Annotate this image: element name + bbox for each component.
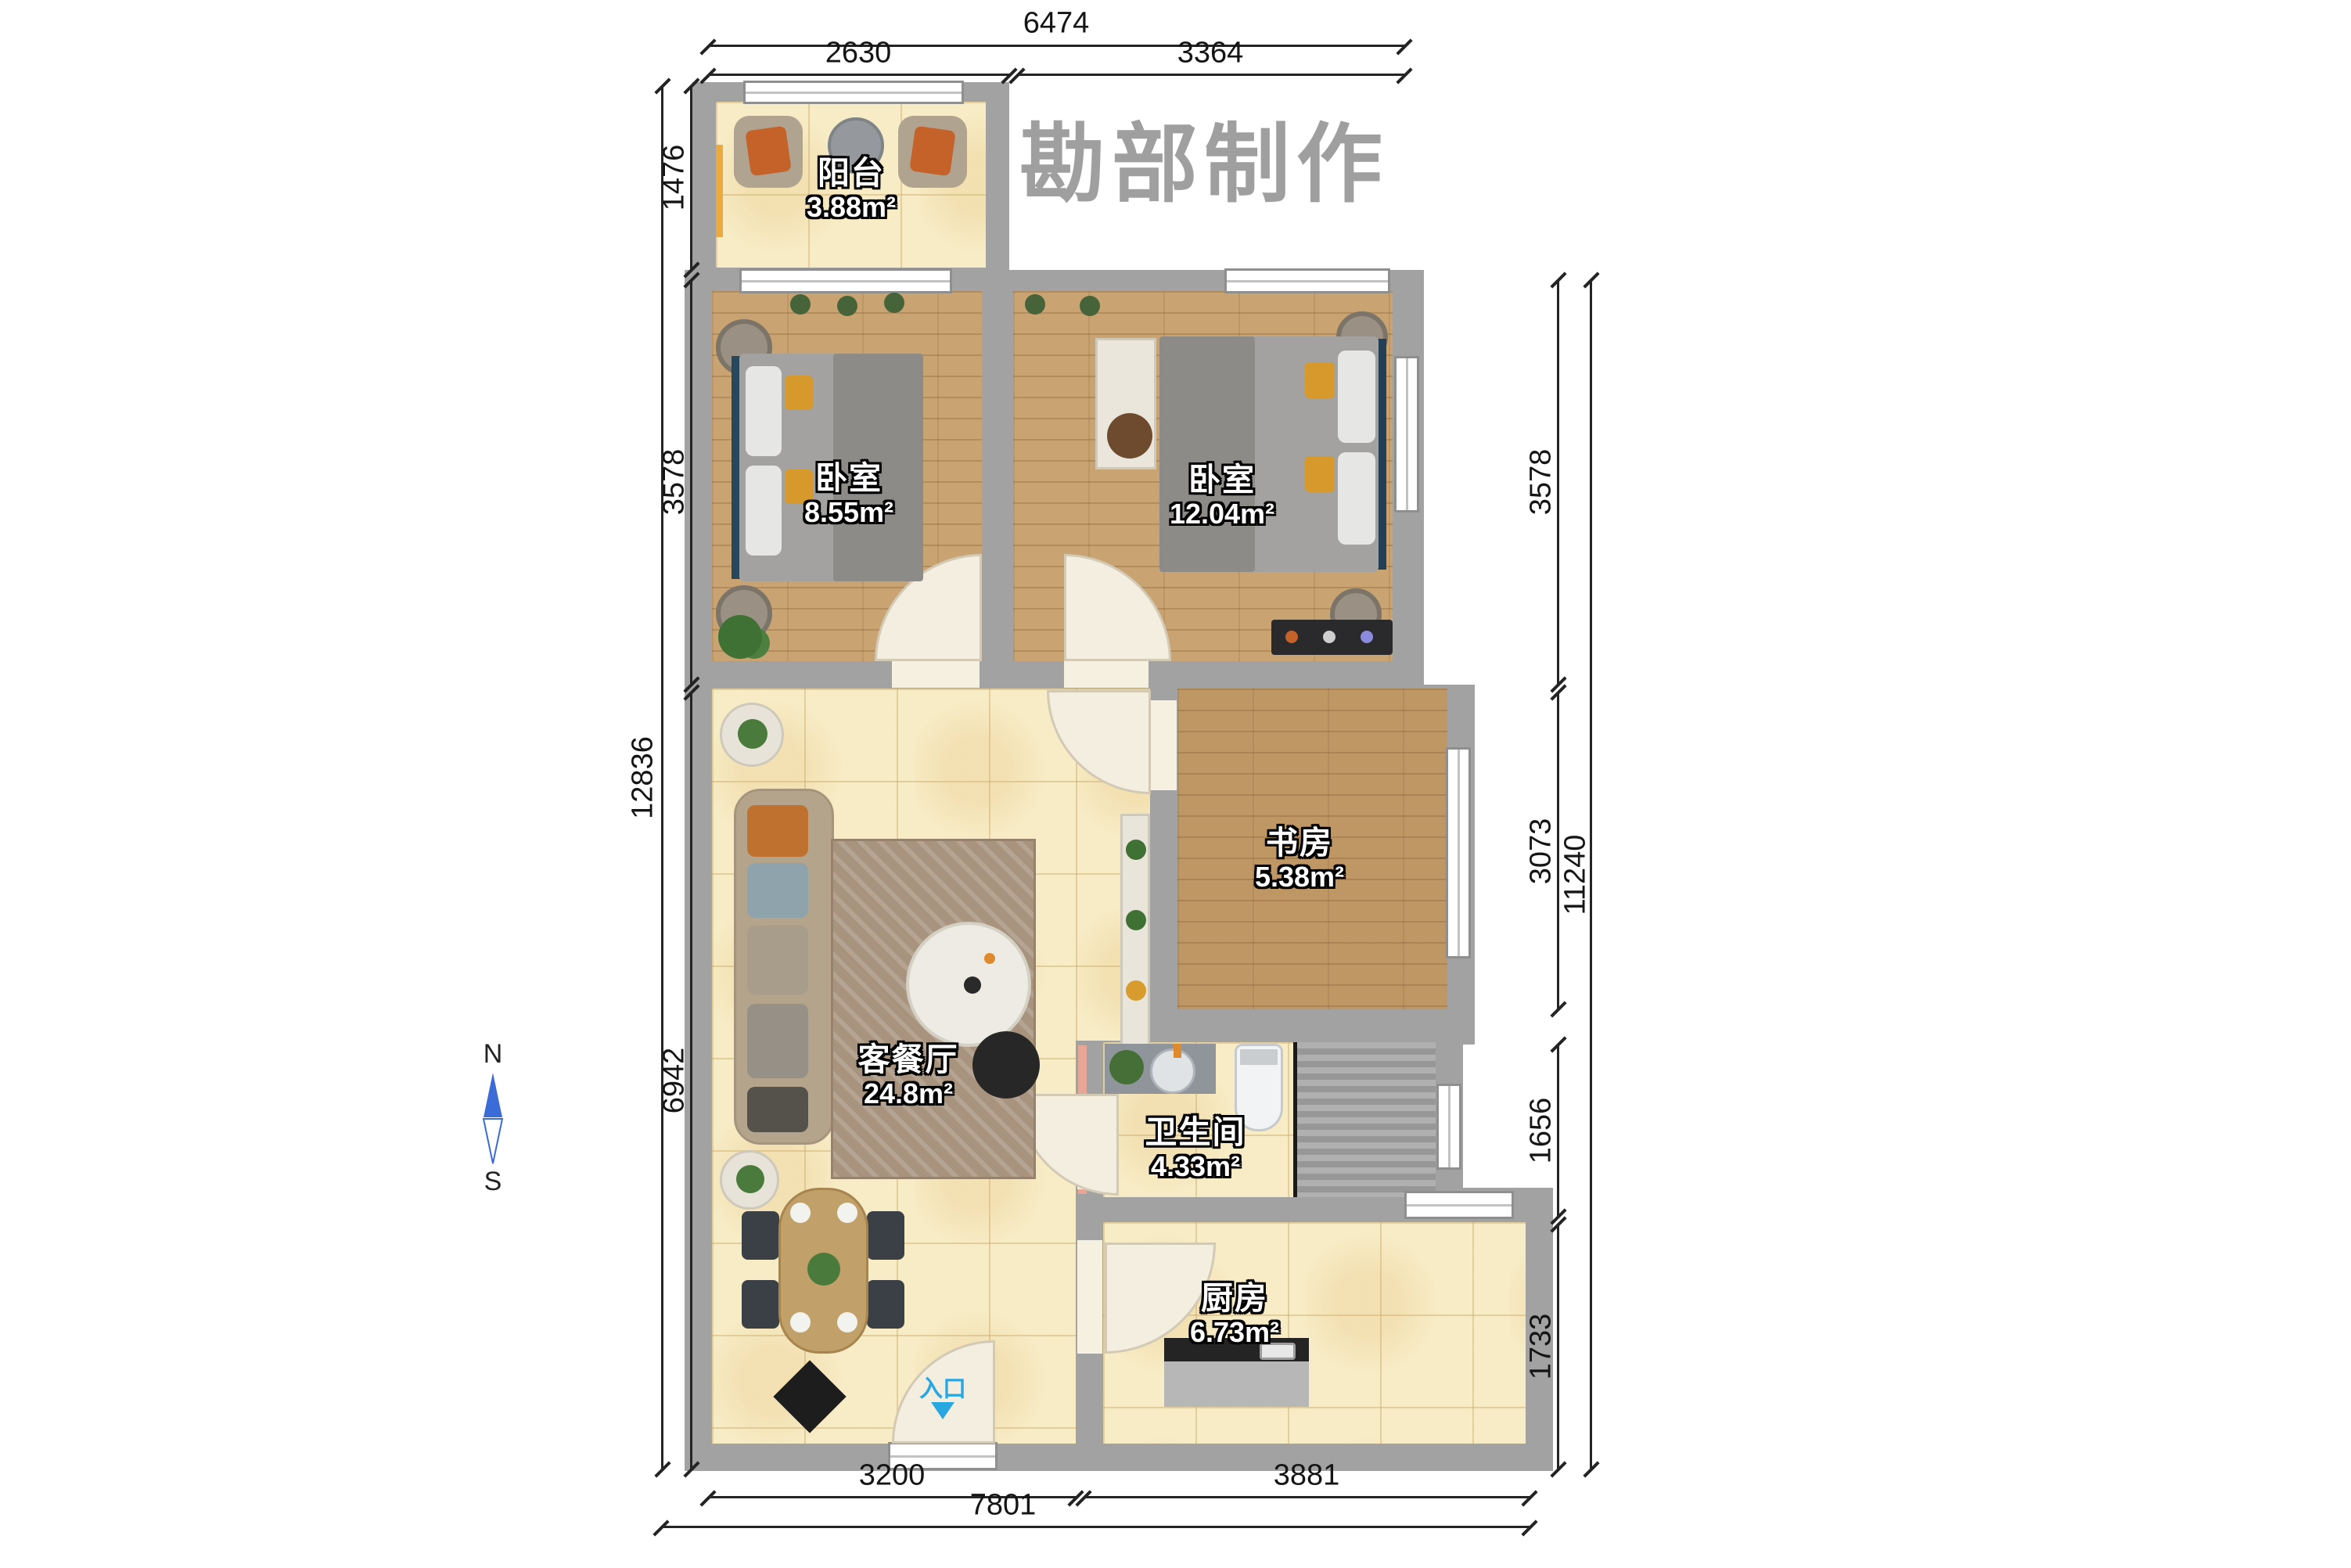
dim-left-living: 6942: [658, 1048, 692, 1114]
floorplan-canvas: 房勘部制作: [0, 0, 2351, 1568]
compass-needle-icon: [477, 1071, 509, 1165]
window-balcony-bedroom: [739, 268, 952, 293]
dimline-top-right: [1017, 74, 1404, 76]
dim-top-left: 2630: [825, 36, 892, 70]
balcony-chair-right: [898, 116, 967, 188]
dining-chair-right-top: [867, 1211, 904, 1260]
label-bedroom-small: 卧室 8.55m²: [804, 461, 893, 528]
dim-right-kitchen: 1733: [1525, 1314, 1558, 1380]
dining-chair-left-top: [742, 1211, 779, 1260]
window-bedroom-large-top: [1224, 268, 1390, 293]
windowsill-plants-large: [1025, 294, 1045, 315]
window-bathroom: [1436, 1084, 1461, 1170]
label-kitchen: 厨房 6.73m²: [1190, 1281, 1279, 1348]
compass: N S: [469, 1039, 516, 1197]
dining-chair-right-bottom: [867, 1280, 904, 1329]
dim-right-study: 3073: [1525, 818, 1558, 885]
bedroom-large-bench: [1271, 620, 1393, 655]
kitchen-counter-body: [1164, 1361, 1309, 1407]
dim-left-balcony: 1476: [658, 145, 692, 211]
label-bathroom: 卫生间 4.33m²: [1145, 1115, 1246, 1182]
dim-top-right: 3364: [1177, 36, 1244, 70]
compass-north-label: N: [469, 1039, 516, 1070]
display-cabinet: [1120, 814, 1150, 1064]
dimline-bottom-total: [661, 1526, 1530, 1528]
entrance-label: 入口: [919, 1369, 966, 1404]
label-study: 书房 5.38m²: [1255, 825, 1344, 893]
dimline-bottom-kitchen: [1084, 1496, 1530, 1498]
shower-partition: [1293, 1042, 1297, 1197]
dim-top-total: 6474: [1023, 6, 1090, 40]
sofa: [734, 789, 834, 1145]
bed-large: [1158, 335, 1386, 574]
dim-bottom-living: 3200: [859, 1458, 926, 1492]
label-bedroom-large: 卧室 12.04m²: [1170, 462, 1274, 530]
dimline-left-total: [661, 86, 663, 1469]
balcony-planter-strip: [716, 145, 723, 237]
label-balcony: 阳台 3.88m²: [807, 156, 896, 223]
dim-right-total: 11240: [1559, 835, 1593, 915]
dim-left-total: 12836: [627, 736, 660, 819]
dimline-top-left: [708, 74, 1009, 76]
entrance-arrow-icon: [931, 1402, 954, 1419]
floor-shower: [1297, 1042, 1436, 1197]
doorway-kitchen: [1077, 1240, 1102, 1354]
desk-chair: [1107, 413, 1152, 459]
dim-right-bedroom: 3578: [1525, 449, 1558, 516]
ottoman: [972, 1031, 1040, 1099]
plant-bedroom-small: [718, 615, 762, 659]
balcony-chair-left: [734, 116, 803, 188]
coffee-table: [906, 922, 1031, 1047]
dim-bottom-kitchen: 3881: [1274, 1458, 1340, 1492]
window-kitchen: [1404, 1191, 1514, 1219]
doorway-bedroom-small: [892, 661, 980, 688]
bathroom-vanity: [1105, 1044, 1216, 1094]
dim-left-bedroom: 3578: [658, 449, 692, 516]
dim-bottom-total: 7801: [970, 1488, 1037, 1522]
windowsill-plants-small: [790, 294, 811, 315]
doorway-bedroom-large: [1064, 661, 1149, 688]
doorway-study: [1150, 700, 1177, 790]
window-bedroom-large-right: [1394, 356, 1419, 512]
side-table-bottom: [720, 1150, 779, 1210]
compass-south-label: S: [469, 1167, 516, 1197]
window-study: [1446, 747, 1471, 958]
side-table-top: [720, 703, 784, 767]
label-living-dining: 客餐厅 24.8m²: [858, 1042, 959, 1109]
dining-chair-left-bottom: [742, 1280, 779, 1329]
dining-table: [778, 1188, 868, 1354]
dim-right-bathroom: 1656: [1525, 1098, 1558, 1164]
dimline-top-total: [708, 45, 1404, 47]
window-balcony: [743, 81, 964, 104]
